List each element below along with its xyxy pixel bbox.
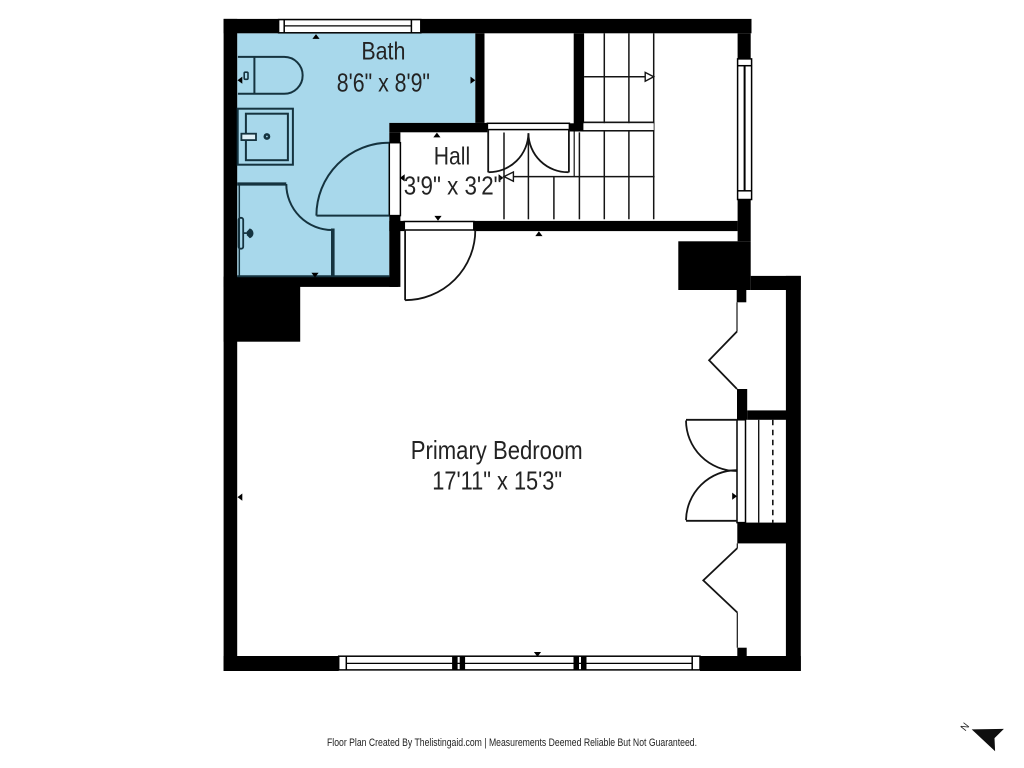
svg-text:Floor Plan Created By Thelisti: Floor Plan Created By Thelistingaid.com … bbox=[327, 737, 697, 749]
svg-text:Bath: Bath bbox=[361, 38, 405, 66]
svg-text:3'9" x 3'2": 3'9" x 3'2" bbox=[404, 170, 502, 200]
svg-text:17'11" x 15'3": 17'11" x 15'3" bbox=[432, 466, 562, 496]
svg-text:Primary Bedroom: Primary Bedroom bbox=[411, 435, 583, 465]
svg-text:8'6" x 8'9": 8'6" x 8'9" bbox=[337, 68, 430, 98]
svg-text:Hall: Hall bbox=[434, 143, 470, 171]
